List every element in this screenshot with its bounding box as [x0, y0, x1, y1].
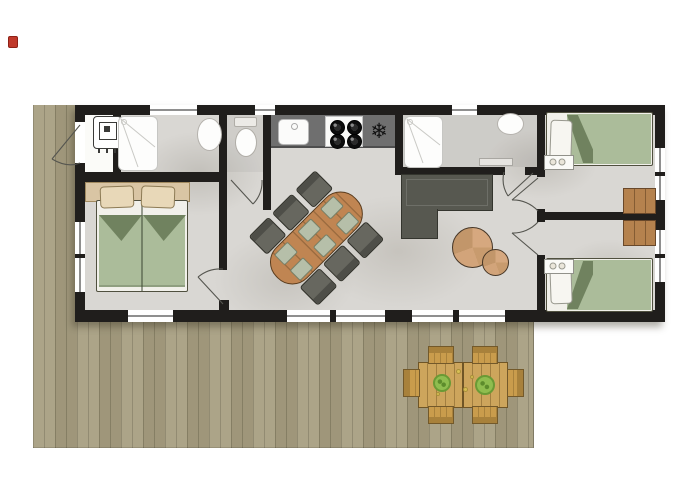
pillow: [141, 185, 176, 208]
chair-backrest: [429, 417, 453, 423]
bathroom-shelf: [479, 158, 513, 166]
outdoor-chair: [428, 406, 454, 424]
washbasin-left: [197, 118, 222, 151]
side-table-small: [482, 249, 509, 276]
cooktop: [325, 116, 363, 147]
window-top-3: [452, 105, 477, 115]
chair-backrest: [517, 370, 523, 396]
chair-backrest: [273, 195, 296, 218]
table-garnish: [470, 375, 474, 379]
freezer-snowflake-icon: ❄: [363, 115, 395, 148]
bed-footline: [99, 285, 185, 287]
double-bed: [96, 200, 188, 292]
toilet-tank: [234, 117, 257, 127]
boiler-pipes: [98, 149, 117, 153]
chair-backrest: [313, 281, 336, 304]
nightstand: [544, 259, 574, 274]
window-top-1: [150, 105, 197, 115]
wall-living-bedrooms-b: [537, 209, 545, 222]
burner: [347, 120, 362, 135]
floor-plan: ❄: [0, 0, 700, 500]
glazed-door-bottom-1: [128, 310, 173, 322]
chair-backrest: [250, 218, 273, 241]
burner: [330, 120, 345, 135]
burner: [347, 134, 362, 149]
outdoor-chair: [472, 406, 498, 424]
wall-under-bathroom: [85, 172, 227, 182]
outdoor-chair: [472, 346, 498, 364]
cabinet: [623, 188, 656, 214]
chair-backrest: [429, 347, 453, 353]
outdoor-chair: [403, 369, 420, 397]
chair-backrest: [336, 258, 359, 281]
red-location-marker-icon: [8, 36, 18, 48]
chair-backrest: [404, 370, 410, 396]
wall-bedroom-left-stub: [219, 300, 229, 310]
chair-backrest: [360, 234, 383, 257]
toilet-bowl: [235, 128, 257, 157]
green-plate: [475, 375, 495, 395]
boiler-display: [104, 126, 110, 132]
window-top-2: [255, 105, 275, 115]
chair-backrest: [297, 172, 320, 195]
green-plate: [433, 374, 451, 392]
table-garnish: [436, 392, 440, 396]
wall-bathroom-toilet: [219, 115, 227, 172]
kitchen-sink: [278, 119, 309, 145]
window-mullion: [655, 254, 665, 258]
closet-exterior-door-opening: [75, 122, 85, 163]
outdoor-chair: [428, 346, 454, 364]
sofa-cushion-line: [406, 179, 488, 206]
shower-tray-right: [404, 116, 443, 168]
pillow: [100, 185, 135, 208]
table-garnish: [456, 369, 461, 374]
chair-backrest: [473, 417, 497, 423]
mattress-seam: [141, 203, 143, 291]
cabinet: [623, 220, 656, 246]
shower-tray-left: [118, 116, 158, 171]
window-mullion: [453, 310, 459, 322]
washbasin-right: [497, 113, 524, 135]
chair-backrest: [473, 347, 497, 353]
wall-kitchen-bathroom2: [395, 115, 403, 167]
nightstand: [544, 155, 574, 170]
burner: [330, 134, 345, 149]
table-garnish: [463, 387, 468, 392]
window-mullion: [655, 172, 665, 176]
window-mullion: [75, 254, 85, 258]
outdoor-chair: [507, 369, 524, 397]
